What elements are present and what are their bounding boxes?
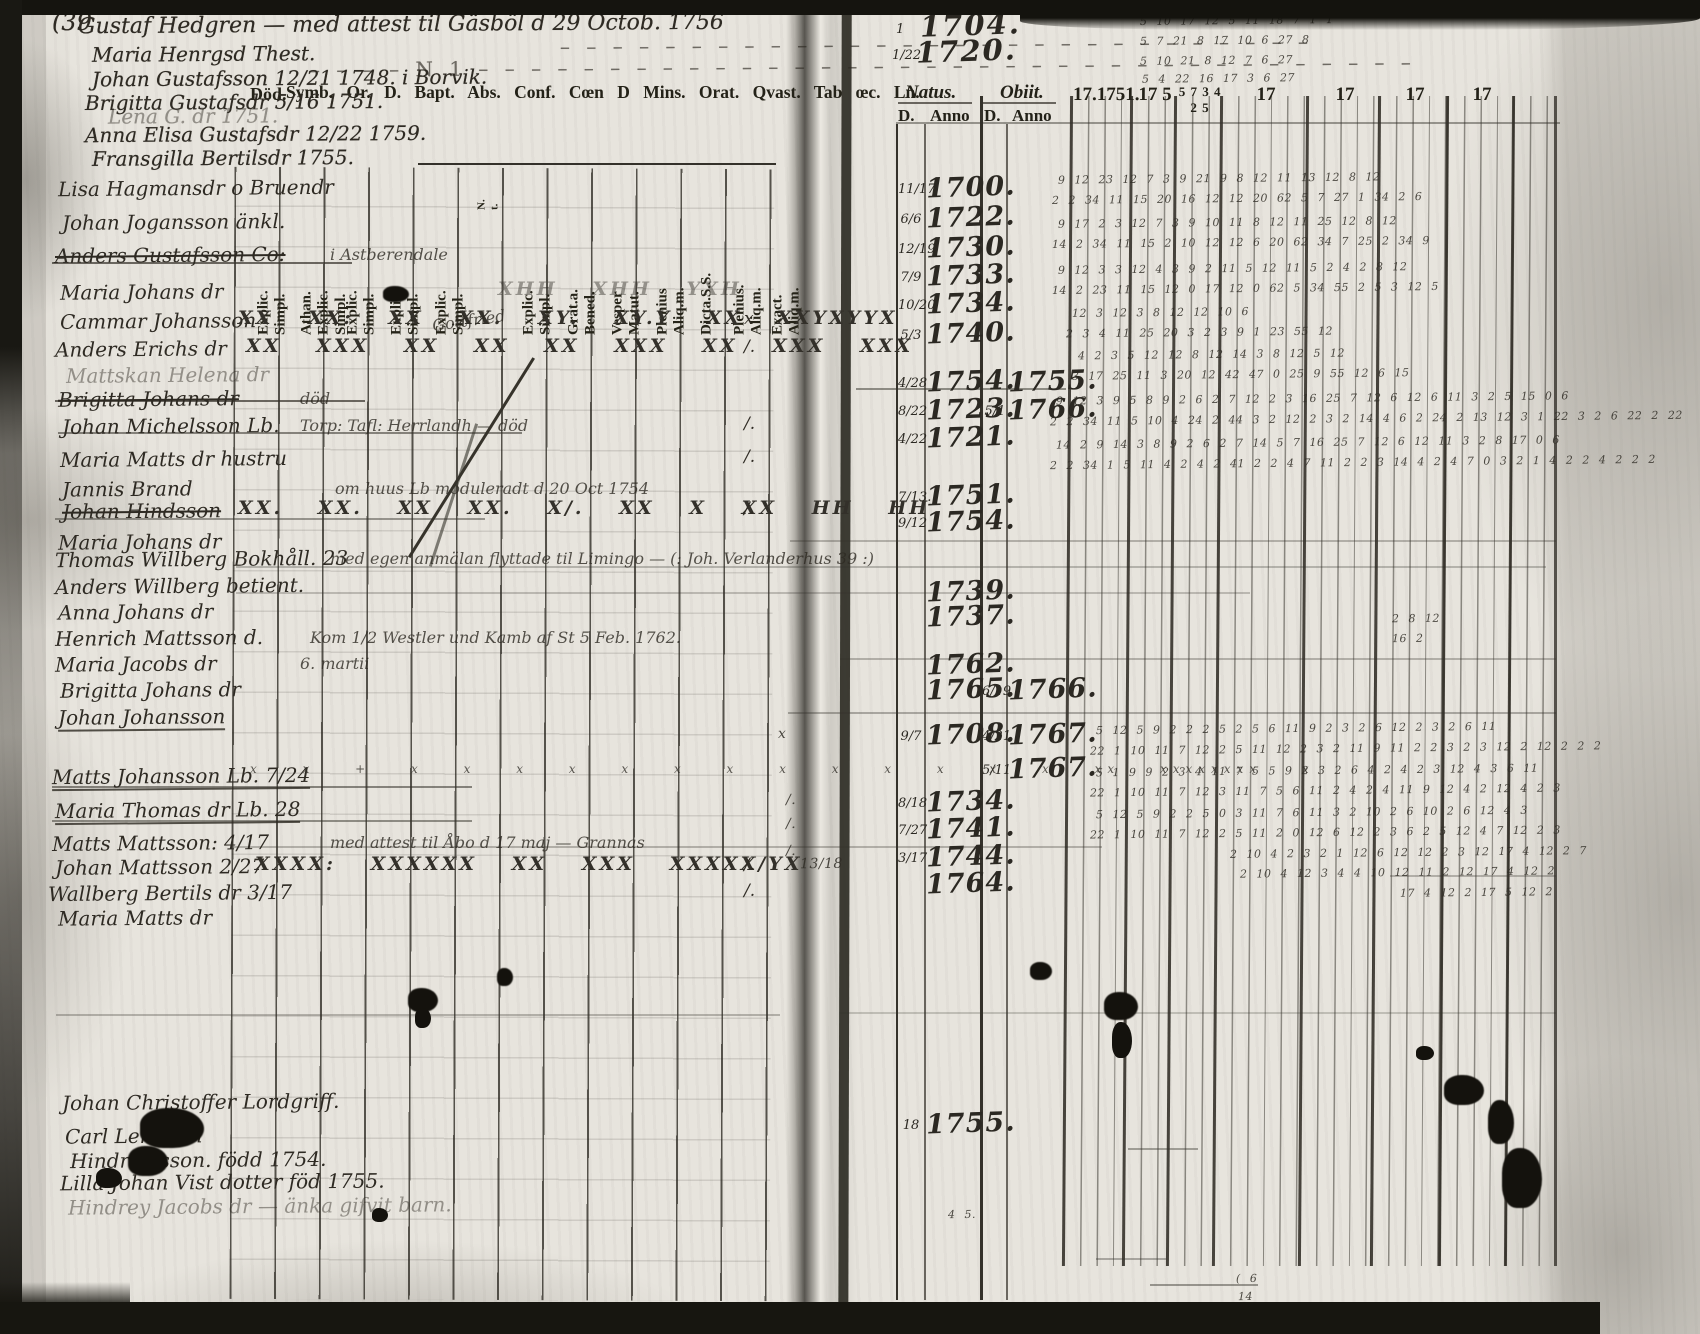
annotation-text: Johan Gustafsson 12/21 1748. i Borvik. — [92, 65, 487, 92]
number-scribble: /. — [786, 816, 796, 832]
natus-day: 8/18 — [898, 796, 924, 811]
register-row: Hindrey Jacobs dr — änka gifvit barn. — [0, 1194, 1700, 1220]
ink-blot — [372, 1208, 388, 1222]
birth-death-entry: 1765. 6/19 1766. — [0, 678, 760, 708]
scribble-text: 2 3 4 11 25 20 3 2 3 9 1 23 55 12 — [1066, 325, 1333, 341]
number-scribble: 5 10 21 8 12 7 6 27 — [1140, 53, 1293, 68]
ink-blot — [415, 1008, 431, 1028]
year-group-header: 17 — [1223, 84, 1309, 106]
birth-death-entry: 5/3 1740. — [0, 322, 760, 352]
birth-death-entry: 6/6 1722. — [0, 206, 760, 236]
obiit-year: 1767. — [1007, 717, 1098, 751]
number-scribble: /. — [786, 792, 796, 808]
scribble-text: 5 4 22 16 17 3 6 27 — [1142, 71, 1295, 86]
scan-edge-top-right — [1020, 0, 1700, 30]
natus-day: 6/6 — [898, 212, 924, 227]
scan-edge-left — [0, 0, 22, 1334]
scribble-text: 5 10 21 8 12 7 6 27 — [1140, 53, 1293, 68]
obiit-year: 1767. — [1007, 751, 1098, 785]
person-name: Thomas Willberg Bokhåll. 23 — [55, 546, 348, 573]
number-scribble: 16 2 — [1392, 632, 1424, 645]
faint-rule — [840, 1012, 1556, 1014]
year-group-header: 17 5 — [1133, 84, 1177, 106]
birth-death-entry: 3/17 1744. — [0, 845, 760, 875]
year-group-header: 5 7 3 4 2 5 — [1177, 84, 1223, 116]
birth-death-entry: 1764. — [0, 872, 760, 902]
natus-day: 7/9 — [898, 270, 924, 285]
scan-edge-bottom-left — [0, 1282, 130, 1308]
number-scribble: 5 7 21 8 17 10 6 27 8 — [1140, 33, 1310, 48]
natus-day: 4/28 — [898, 376, 924, 391]
number-scribble: 4 2 3 5 12 12 8 12 14 3 8 12 5 12 — [1078, 347, 1345, 363]
natus-day: 9/12 — [898, 516, 924, 531]
natus-anno-subheader: Anno — [930, 106, 970, 126]
person-name: Maria Matts dr — [58, 905, 212, 930]
natus-year: 1734. — [925, 286, 1016, 320]
natus-day: 12/19 — [898, 242, 924, 257]
ink-blot — [1416, 1046, 1434, 1060]
natus-day: 7/27 — [898, 823, 924, 838]
scan-edge-bottom — [0, 1302, 1600, 1334]
number-scribble: 13/18 — [800, 856, 843, 872]
scribble-text: 5 7 21 8 17 10 6 27 8 — [1140, 33, 1310, 48]
natus-year: 1722. — [925, 200, 1016, 234]
ink-blot — [1502, 1148, 1542, 1208]
ink-blot — [1030, 962, 1052, 980]
birth-death-entry: 1737. — [0, 605, 760, 635]
ink-blot — [140, 1108, 204, 1148]
birth-death-entry: 4/28 1754. 1755. — [0, 370, 760, 400]
number-scribble: 4 5. — [948, 1208, 976, 1221]
scanned-parish-register: (39 Symb. Or. D. Bapt. Abs. Conf. Cœn D … — [0, 0, 1700, 1334]
scribble-text: x — [778, 726, 787, 742]
birth-death-entry: 8/18 1734. — [0, 790, 760, 820]
natus-day-subheader: D. — [898, 106, 915, 126]
scribble-text: 17 4 12 2 17 5 12 2 — [1400, 885, 1553, 900]
obiit-day: 4/21 — [982, 729, 1008, 744]
birth-death-entry: 11/17 1700. — [0, 176, 760, 206]
obiit-header: Obiit. — [1000, 82, 1044, 104]
birth-death-entry: 10/20 1734. — [0, 292, 760, 322]
number-scribble: 2 3 4 11 25 20 3 2 3 9 1 23 55 12 — [1066, 325, 1333, 341]
obiit-day: 6/19 — [982, 684, 1008, 699]
natus-year: 1764. — [925, 866, 1016, 900]
birth-death-entry: 4/22 1721. — [0, 426, 760, 456]
natus-day: 7/13. — [898, 490, 924, 505]
annotation-text: Maria Henrgsd Thest. — [92, 41, 315, 67]
ink-blot — [128, 1146, 168, 1176]
natus-day: 11/17 — [898, 182, 924, 197]
annotation-text: Fransgilla Bertilsdr 1755. — [92, 145, 354, 171]
scribble-text: 13/18 — [800, 856, 843, 872]
faint-rule — [1096, 1258, 1166, 1260]
ink-blot — [383, 286, 409, 302]
date-day-fraction: 1 — [896, 22, 904, 37]
number-scribble: x — [778, 726, 787, 742]
obiit-day-subheader: D. — [984, 106, 1001, 126]
year-group-header: 17 — [1381, 84, 1449, 106]
scribble-text: 4 5. — [948, 1208, 976, 1221]
scribble-text: /. — [786, 843, 796, 859]
natus-year: 1737. — [925, 599, 1016, 633]
natus-day: 9/7 — [898, 729, 924, 744]
natus-year: 1700. — [925, 170, 1016, 204]
handwritten-annotation: Anna Elisa Gustafsdr 12/22 1759. — [85, 121, 426, 147]
year-group-header: 17 — [1309, 84, 1381, 106]
annotation-text: Anna Elisa Gustafsdr 12/22 1759. — [85, 121, 426, 147]
number-scribble: 12 3 12 3 8 12 12 10 6 — [1072, 305, 1249, 320]
birth-death-entry: 7/9 1733. — [0, 264, 760, 294]
register-row: Lilla Johan Vist dotter föd 1755. — [0, 1170, 1700, 1196]
year-group-header: 17.1751. — [1073, 84, 1133, 106]
birth-death-entry: 5/11 1767. — [0, 757, 760, 787]
natus-year: 1721. — [925, 420, 1016, 454]
number-scribble: 17 4 12 2 17 5 12 2 — [1400, 885, 1553, 900]
number-scribble: 5 4 22 16 17 3 6 27 — [1142, 71, 1295, 86]
person-name: Hindrey Jacobs dr — änka gifvit barn. — [68, 1192, 452, 1219]
scribble-text: ( 6 — [1236, 1272, 1257, 1285]
scribble-text: 4 2 3 5 12 12 8 12 14 3 8 12 5 12 — [1078, 347, 1345, 363]
ink-blot — [497, 968, 513, 986]
natus-year: 1755. — [925, 1106, 1016, 1140]
handwritten-annotation: Fransgilla Bertilsdr 1755. — [92, 145, 354, 171]
natus-year: 1740. — [925, 316, 1016, 350]
scribble-text: 2 8 12 — [1392, 612, 1440, 626]
natus-day: 4/22 — [898, 432, 924, 447]
obiit-anno-subheader: Anno — [1012, 106, 1052, 126]
ink-blot — [1488, 1100, 1514, 1144]
date-year: 1720. — [915, 32, 1017, 69]
natus-day: 8/22 — [898, 404, 924, 419]
birth-death-entry: 7/27 1741. — [0, 817, 760, 847]
register-row: Thomas Willberg Bokhåll. 23 med egen anm… — [0, 547, 1700, 573]
birth-death-entry: 12/19 1730. — [0, 236, 760, 266]
birth-death-entry: 9/12 1754. — [0, 510, 760, 540]
natus-header: Natus. — [905, 82, 956, 104]
ink-blot — [96, 1168, 122, 1188]
handwritten-annotation: Maria Henrgsd Thest. — [92, 41, 315, 67]
ink-blot — [1444, 1075, 1484, 1105]
ink-blot — [1104, 992, 1138, 1020]
natus-day: 3/17 — [898, 851, 924, 866]
handwritten-annotation: Johan Gustafsson 12/21 1748. i Borvik. — [92, 65, 487, 92]
natus-day: 10/20 — [898, 298, 924, 313]
natus-day: 5/3 — [898, 328, 924, 343]
number-scribble: 2 8 12 — [1392, 612, 1440, 626]
register-row: Maria Matts dr — [0, 906, 1700, 932]
birth-death-entry: 9/7 1708. 4/21 1767. — [0, 723, 760, 753]
birth-death-entry: 8/22 1723. 5/1 1766. — [0, 398, 760, 428]
obiit-year: 1766. — [1007, 672, 1098, 706]
ink-blot — [1112, 1022, 1132, 1058]
number-scribble: ( 6 — [1236, 1272, 1257, 1285]
number-scribble: /. — [786, 843, 796, 859]
natus-year: 1754. — [925, 504, 1016, 538]
scribble-text: /. — [786, 792, 796, 808]
obiit-day: 5/1 — [982, 404, 1008, 419]
birth-death-entry: 18 1755. — [0, 1112, 760, 1142]
scribble-text: 16 2 — [1392, 632, 1424, 645]
year-group-header: 17 — [1449, 84, 1515, 106]
scribble-text: /. — [786, 816, 796, 832]
natus-day: 18 — [898, 1118, 924, 1133]
scribble-text: 12 3 12 3 8 12 12 10 6 — [1072, 305, 1249, 320]
obiit-day: 5/11 — [982, 763, 1008, 778]
